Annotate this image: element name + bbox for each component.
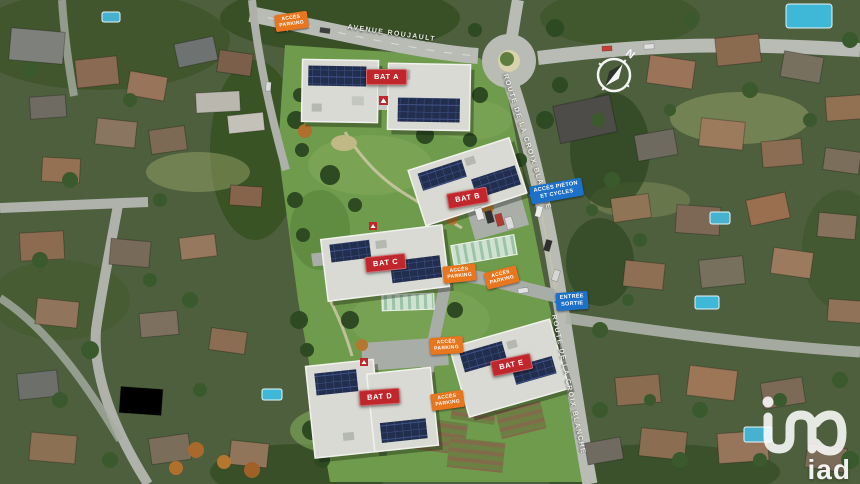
badge-access-parking-2: ACCÈS PARKING — [442, 263, 476, 283]
satellite-basemap — [0, 0, 860, 484]
aerial-site-plan: AVENUE ROUJAULT ROUTE DE LA CROIX BLANCH… — [0, 0, 860, 484]
compass-north-label: N — [623, 47, 637, 61]
badge-entry-exit: ENTRÉE SORTIE — [555, 291, 588, 311]
iad-logo: iad — [756, 393, 854, 484]
badge-access-parking-4: ACCÈS PARKING — [429, 336, 463, 355]
compass-icon: N — [585, 44, 643, 102]
badge-bat-a: BAT A — [366, 69, 407, 85]
badge-bat-d: BAT D — [359, 388, 401, 406]
iad-brand-text: iad — [756, 456, 854, 484]
building-bat-d — [306, 353, 443, 463]
iad-monogram-icon — [756, 393, 852, 459]
